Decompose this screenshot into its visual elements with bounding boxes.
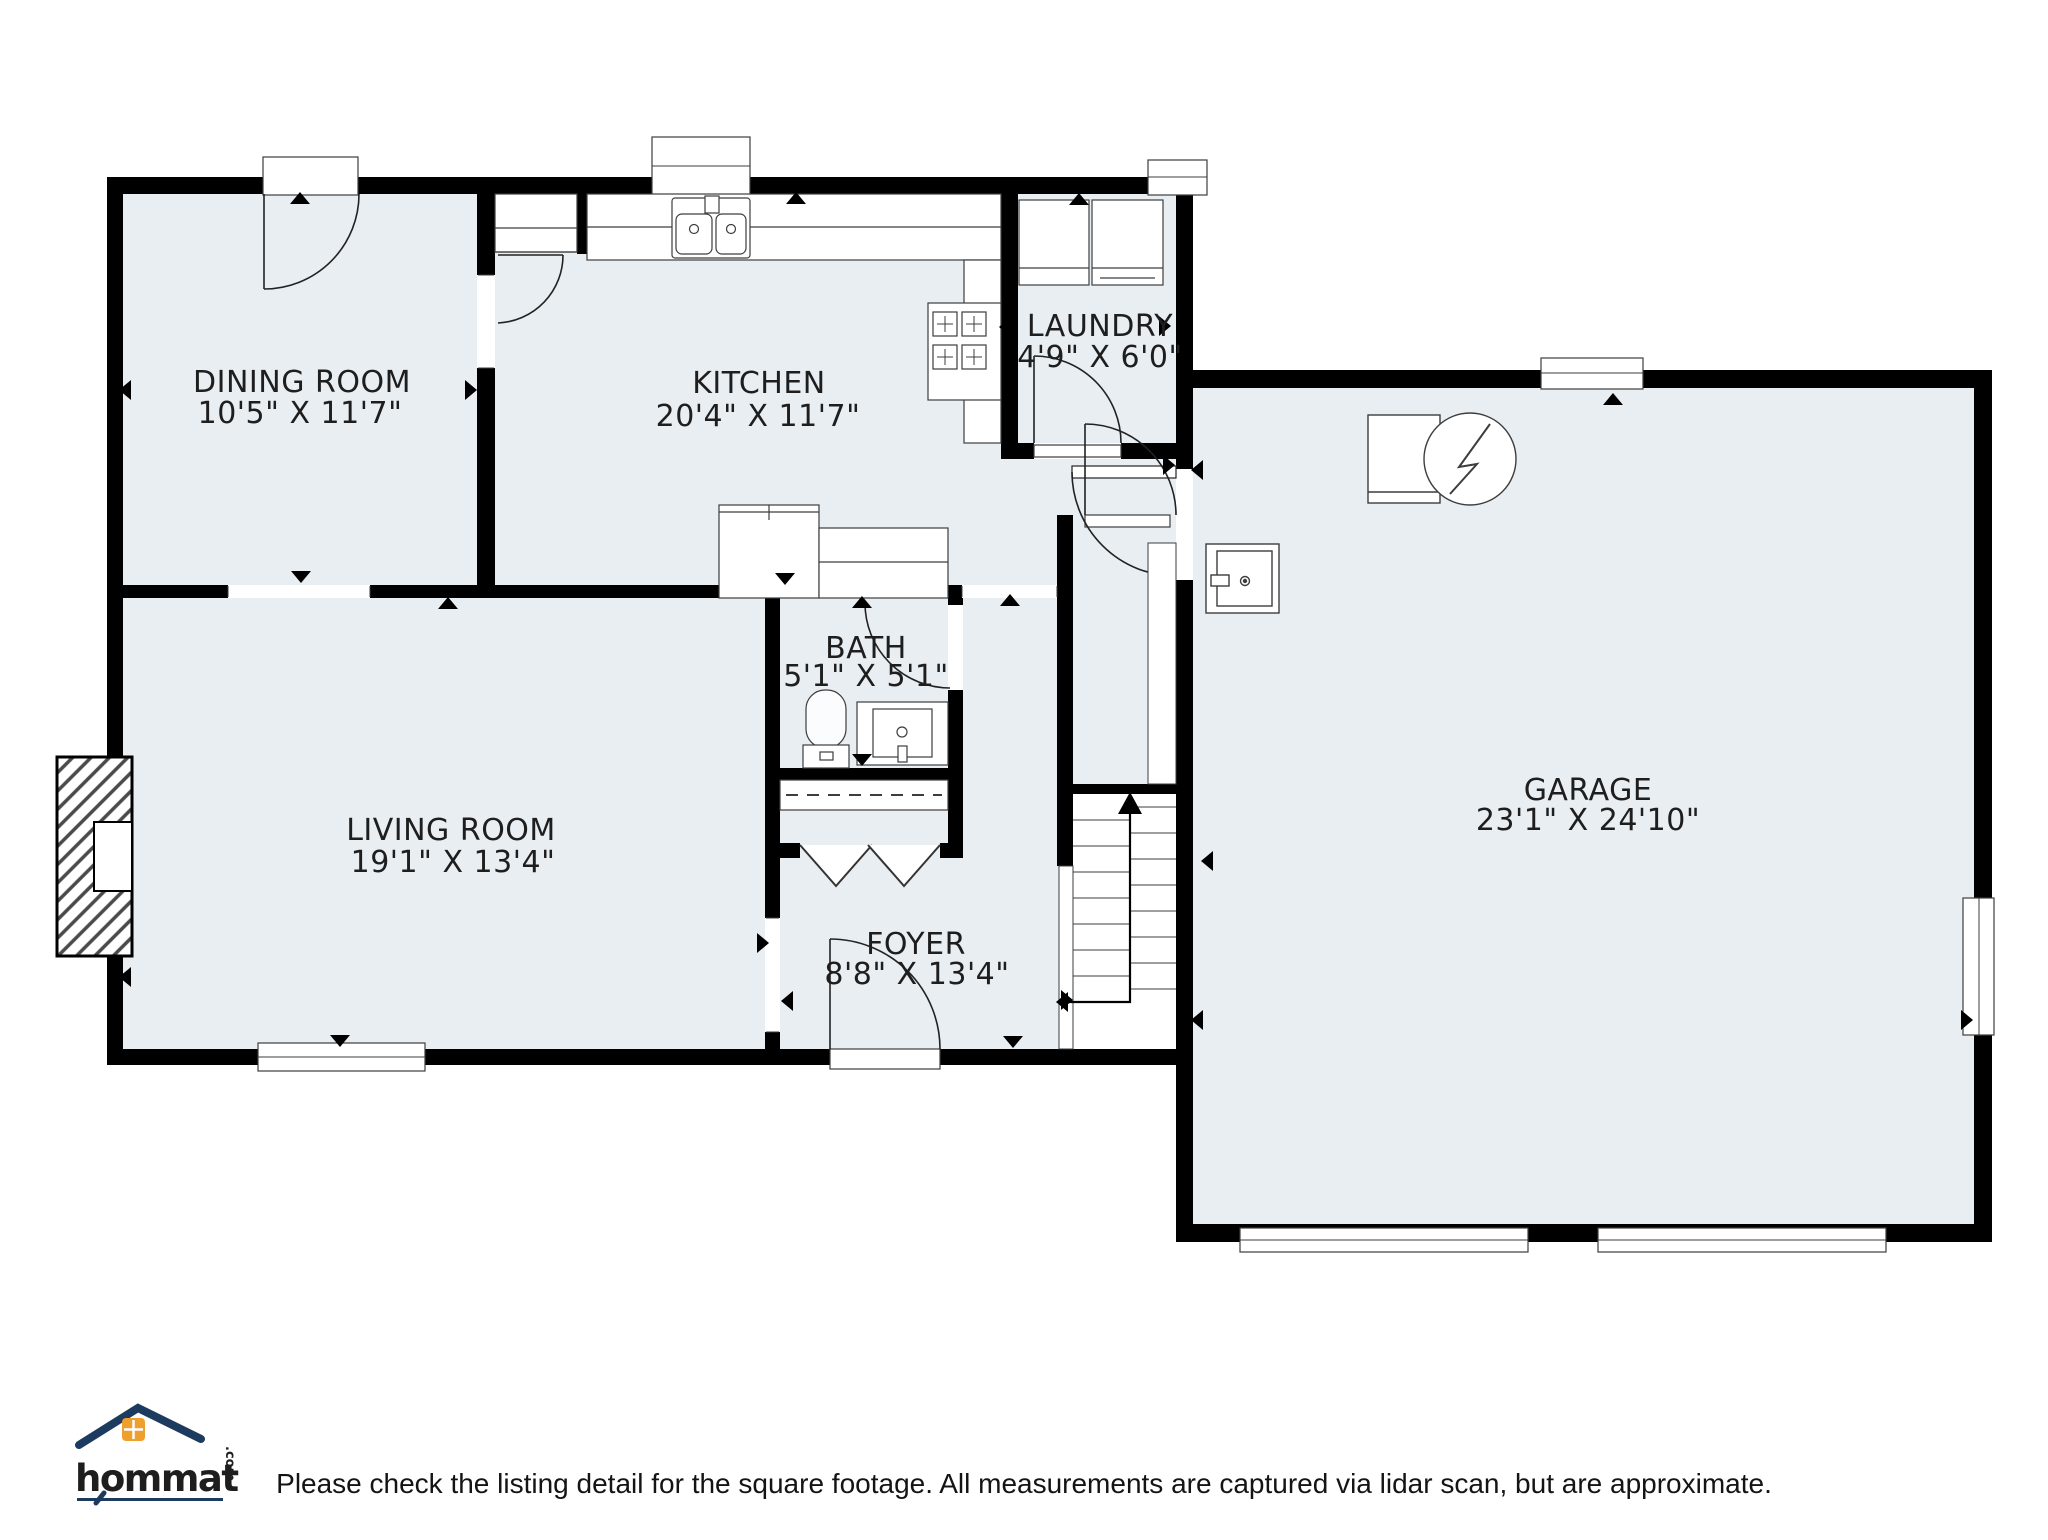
laundry-door-threshold: [1034, 445, 1121, 457]
dims-living-room: 19'1" X 13'4": [351, 845, 556, 880]
dims-dining-room: 10'5" X 11'7": [198, 396, 403, 431]
wall-dining-kitchen: [477, 194, 495, 597]
label-kitchen: KITCHEN: [692, 366, 826, 401]
mudroom-threshold: [1085, 515, 1170, 527]
dims-foyer: 8'8" X 13'4": [824, 957, 1009, 992]
water-heater-icon: [1424, 413, 1516, 505]
label-dining-room: DINING ROOM: [193, 365, 411, 400]
kitchen-island-icon: [819, 528, 948, 598]
label-living-room: LIVING ROOM: [346, 813, 556, 848]
dims-kitchen: 20'4" X 11'7": [656, 399, 861, 434]
toilet-icon: [803, 690, 849, 768]
fireplace-icon: [57, 757, 132, 956]
opening-dining-kitchen: [477, 275, 495, 368]
dims-garage: 23'1" X 24'10": [1476, 803, 1700, 838]
floorplan-drawing: DINING ROOM 10'5" X 11'7" KITCHEN 20'4" …: [0, 0, 2048, 1536]
opening-dining-living: [228, 585, 370, 598]
wall-pantry-right: [577, 194, 587, 254]
stair-side-strip: [1059, 866, 1073, 1049]
wall-hall-left: [1057, 515, 1073, 866]
floorplan-page: DINING ROOM 10'5" X 11'7" KITCHEN 20'4" …: [0, 0, 2048, 1536]
stair-upper-run: [1148, 543, 1176, 784]
dryer-icon: [1092, 200, 1163, 285]
washer-icon: [1019, 200, 1089, 285]
wall-garage-right: [1974, 388, 1992, 1224]
label-laundry: LAUNDRY: [1027, 309, 1173, 344]
dining-entry-threshold: [263, 157, 358, 195]
disclaimer-text: Please check the listing detail for the …: [0, 1468, 2048, 1500]
electrical-panel-icon: [1206, 544, 1279, 613]
front-door-threshold: [830, 1049, 940, 1069]
wall-closet-stub-left: [780, 843, 800, 858]
house-floor: [123, 194, 1176, 1049]
wall-bath-bottom: [765, 768, 963, 780]
wall-closet-stub-right: [940, 843, 963, 858]
dims-laundry: 4'9" X 6'0": [1017, 340, 1183, 375]
refrigerator-icon: [719, 505, 819, 598]
pantry-icon: [495, 194, 577, 252]
opening-living-foyer: [765, 918, 780, 1032]
opening-garage-entry: [1176, 469, 1193, 580]
kitchen-sink-icon: [672, 196, 750, 258]
closet-rod-icon: [780, 780, 948, 810]
wall-stairs-top: [1073, 784, 1176, 794]
logo-window-icon: [122, 1418, 145, 1441]
opening-bath-door: [948, 605, 963, 690]
stove-icon: [928, 303, 1001, 400]
dims-bath: 5'1" X 5'1": [783, 659, 949, 694]
